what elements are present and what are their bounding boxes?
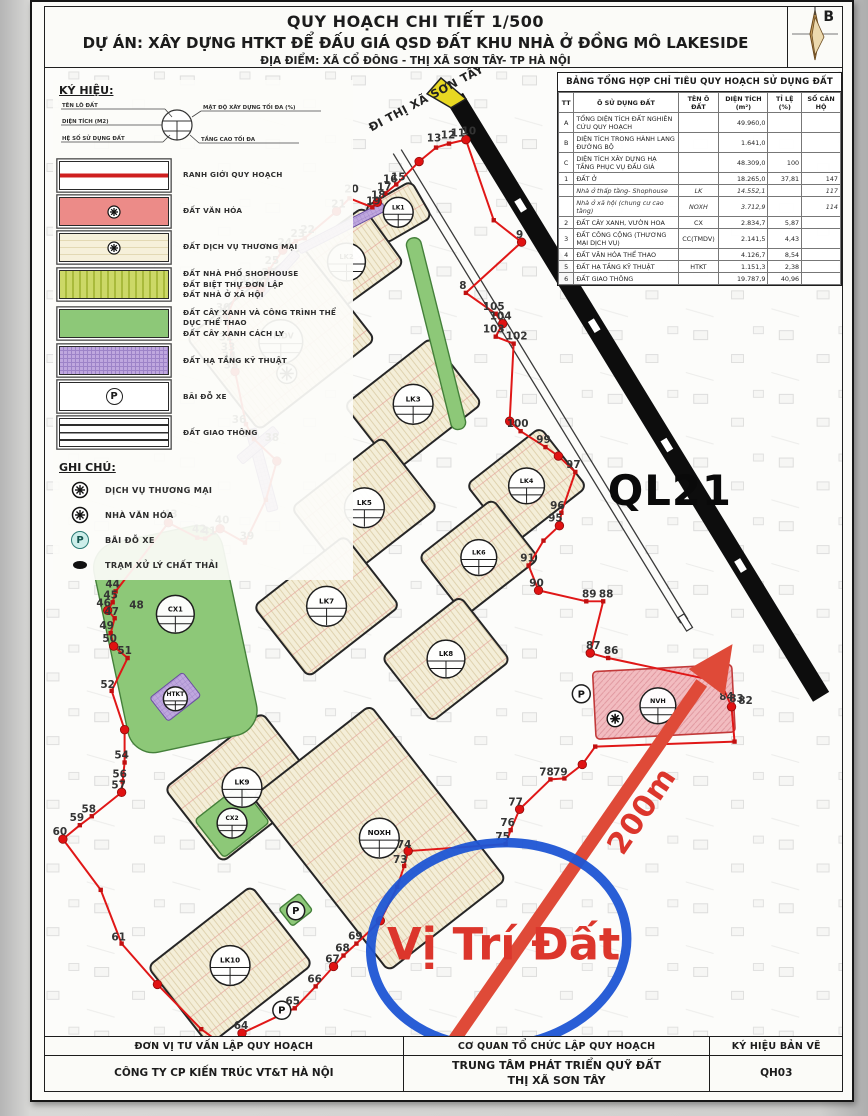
table-row: Nhà ở xã hội (chung cư cao tầng)NOXH3.71… — [559, 197, 841, 217]
boundary-point-number: 19 — [366, 195, 381, 207]
table-cell: 2 — [559, 217, 574, 229]
legend-item-boundary: RANH GIỚI QUY HOẠCH — [59, 161, 351, 190]
table-cell: ĐẤT CÂY XANH, VƯỜN HOA — [574, 217, 678, 229]
table-cell: 18.265,0 — [719, 173, 768, 185]
table-cell — [678, 249, 719, 261]
drawing-sheet: QUY HOẠCH CHI TIẾT 1/500 DỰ ÁN: XÂY DỰNG… — [30, 0, 854, 1102]
table-cell — [802, 217, 841, 229]
parcel-stamp-CX1: CX1 — [156, 595, 194, 633]
boundary-point-number: 100 — [507, 418, 529, 430]
parcel-stamp-CX2: CX2 — [217, 808, 247, 838]
boundary-point-number: 74 — [397, 839, 412, 851]
table-cell: 6 — [559, 273, 574, 285]
table-row: Nhà ở thấp tầng- ShophouseLK14.552,1117 — [559, 185, 841, 197]
boundary-point-number: 89 — [582, 588, 597, 600]
boundary-point-number: 90 — [529, 577, 544, 589]
boundary-point-number: 95 — [548, 513, 563, 525]
table-cell: 37,81 — [768, 173, 802, 185]
table-cell: CX — [678, 217, 719, 229]
boundary-point-number: 87 — [586, 640, 601, 652]
table-cell — [559, 185, 574, 197]
table-cell — [802, 153, 841, 173]
note-label: TRẠM XỬ LÝ CHẤT THẢI — [105, 560, 218, 570]
organizer-name-line1: TRUNG TÂM PHÁT TRIỂN QUỸ ĐẤT — [452, 1059, 661, 1073]
svg-text:MẬT ĐỘ XÂY DỰNG TỐI ĐA (%): MẬT ĐỘ XÂY DỰNG TỐI ĐA (%) — [203, 103, 296, 111]
boundary-point-number: 76 — [500, 817, 515, 829]
boundary-marker — [434, 145, 438, 149]
svg-text:LK6: LK6 — [472, 549, 486, 557]
table-cell: 4 — [559, 249, 574, 261]
boundary-dot — [120, 725, 129, 734]
svg-text:HTKT: HTKT — [166, 691, 185, 698]
boundary-point-number: 69 — [348, 931, 363, 943]
boundary-point-number: 68 — [335, 943, 350, 955]
parcel-stamp-LK10: LK10 — [210, 946, 250, 986]
table-row: 1ĐẤT Ở18.265,037,81147 — [559, 173, 841, 185]
table-cell — [559, 197, 574, 217]
parcel-stamp-LK3: LK3 — [393, 384, 433, 424]
parcel-stamp-LK9: LK9 — [222, 767, 262, 807]
table-cell — [768, 185, 802, 197]
boundary-point-number: 88 — [599, 588, 614, 600]
legend-swatch-green — [59, 309, 169, 338]
table-header: TỈ LỆ (%) — [768, 93, 802, 113]
table-cell: 3.712,9 — [719, 197, 768, 217]
table-cell: 49.960,0 — [719, 113, 768, 133]
legend-swatch-road — [59, 418, 169, 447]
legend-swatch-htkt — [59, 346, 169, 375]
table-cell — [768, 133, 802, 153]
boundary-point-number: 77 — [508, 796, 523, 808]
boundary-point-number: 66 — [307, 973, 322, 985]
legend-label: ĐẤT DỊCH VỤ THƯƠNG MẠI — [183, 242, 297, 253]
map-area: LK1LK2TMDVLK3LK4LK5LK6LK7LK8CX1LK9CX2NOX… — [45, 68, 842, 1036]
legend-swatch-culture — [59, 197, 169, 226]
boundary-point-number: 91 — [520, 553, 535, 565]
table-title: BẢNG TỔNG HỢP CHỈ TIÊU QUY HOẠCH SỬ DỤNG… — [558, 73, 841, 92]
table-cell: 1 — [559, 173, 574, 185]
table-cell — [802, 133, 841, 153]
boundary-point-number: 48 — [129, 599, 144, 611]
table-cell: 2.834,7 — [719, 217, 768, 229]
boundary-point-number: 99 — [536, 434, 551, 446]
svg-text:LK10: LK10 — [220, 955, 240, 964]
table-row: CDIỆN TÍCH XÂY DỰNG HẠ TẦNG PHỤC VỤ ĐẤU … — [559, 153, 841, 173]
table-cell: A — [559, 113, 574, 133]
footer-consultant: ĐƠN VỊ TƯ VẤN LẬP QUY HOẠCH CÔNG TY CP K… — [45, 1037, 404, 1091]
landuse-summary-table: BẢNG TỔNG HỢP CHỈ TIÊU QUY HOẠCH SỬ DỤNG… — [557, 72, 842, 286]
boundary-marker — [732, 739, 736, 743]
commerce-icon — [71, 481, 89, 499]
legend-item-commerce: ĐẤT DỊCH VỤ THƯƠNG MẠI — [59, 233, 351, 262]
note-label: NHÀ VĂN HÓA — [105, 510, 174, 520]
table-cell: 4.126,7 — [719, 249, 768, 261]
culture-icon — [607, 711, 623, 727]
parcel-stamp-NOXH: NOXH — [359, 818, 399, 858]
notes-heading: GHI CHÚ: — [59, 461, 351, 474]
symbol-star-icon — [107, 241, 121, 255]
boundary-marker — [492, 218, 496, 222]
parcel-stamp-P: P — [572, 685, 590, 703]
table-header: Ô SỬ DỤNG ĐẤT — [574, 93, 678, 113]
legend-label: ĐẤT GIAO THÔNG — [183, 428, 258, 439]
boundary-dot — [554, 452, 563, 461]
svg-text:LK9: LK9 — [234, 777, 249, 786]
boundary-point-number: 52 — [100, 679, 115, 691]
legend-items: RANH GIỚI QUY HOẠCHĐẤT VĂN HÓAĐẤT DỊCH V… — [59, 161, 351, 447]
boundary-marker — [593, 744, 597, 748]
table-header: TT — [559, 93, 574, 113]
parcel-stamp-HTKT: HTKT — [163, 687, 187, 711]
footer-drawing-code: KÝ HIỆU BẢN VẼ QH03 — [710, 1037, 842, 1091]
boundary-point-number: 47 — [104, 606, 119, 618]
table-cell: 1.641,0 — [719, 133, 768, 153]
table-cell: 4,43 — [768, 229, 802, 249]
parcel-stamp-P: P — [287, 902, 305, 920]
consultant-name: CÔNG TY CP KIẾN TRÚC VT&T HÀ NỘI — [45, 1056, 403, 1091]
organizer-name: TRUNG TÂM PHÁT TRIỂN QUỸ ĐẤT THỊ XÃ SƠN … — [404, 1056, 710, 1091]
parcel-stamp-LK1: LK1 — [383, 197, 413, 227]
boundary-marker — [541, 538, 545, 542]
waste-icon — [71, 556, 89, 574]
table-header: DIỆN TÍCH (m²) — [719, 93, 768, 113]
table-cell: 100 — [768, 153, 802, 173]
svg-text:LK1: LK1 — [392, 204, 405, 211]
boundary-dot — [415, 157, 424, 166]
compass-label: B — [823, 9, 834, 25]
svg-text:LK5: LK5 — [357, 498, 372, 507]
boundary-point-number: 8 — [459, 280, 466, 292]
svg-text:LK3: LK3 — [406, 394, 421, 403]
boundary-point-number: 60 — [53, 826, 68, 838]
drawing-code-value: QH03 — [710, 1056, 842, 1091]
table-row: 5ĐẤT HẠ TẦNG KỸ THUẬTHTKT1.151,32,38 — [559, 261, 841, 273]
svg-text:LK8: LK8 — [439, 650, 454, 658]
note-parking: PBÃI ĐỖ XE — [71, 531, 351, 549]
table-row: 3ĐẤT CÔNG CỘNG (THƯƠNG MẠI DỊCH VỤ)CC(TM… — [559, 229, 841, 249]
table-row: 6ĐẤT GIAO THÔNG19.787,940,96 — [559, 273, 841, 285]
table-cell: 40,96 — [768, 273, 802, 285]
boundary-point-number: 73 — [393, 854, 408, 866]
legend-item-shophouse: ĐẤT NHÀ PHỐ SHOPHOUSEĐẤT BIỆT THỰ ĐƠN LẬ… — [59, 269, 351, 301]
table-cell: Nhà ở thấp tầng- Shophouse — [574, 185, 678, 197]
drawing-title: QUY HOẠCH CHI TIẾT 1/500 — [45, 12, 786, 31]
table-cell: NOXH — [678, 197, 719, 217]
svg-text:HỆ SỐ SỬ DỤNG ĐẤT: HỆ SỐ SỬ DỤNG ĐẤT — [62, 134, 125, 142]
svg-text:LK4: LK4 — [520, 477, 534, 485]
table-cell: 19.787,9 — [719, 273, 768, 285]
table-cell: DIỆN TÍCH TRONG HÀNH LANG ĐƯỜNG BỘ — [574, 133, 678, 153]
svg-text:P: P — [578, 689, 585, 700]
legend-panel: KÝ HIỆU: TÊN LÔ ĐẤT DIỆN TÍCH (M2) HỆ SỐ… — [53, 80, 353, 580]
table-cell: Nhà ở xã hội (chung cư cao tầng) — [574, 197, 678, 217]
legend-label: ĐẤT VĂN HÓA — [183, 206, 242, 217]
table-row: ATỔNG DIỆN TÍCH ĐẤT NGHIÊN CỨU QUY HOẠCH… — [559, 113, 841, 133]
boundary-dot — [153, 980, 162, 989]
boundary-marker — [199, 1027, 203, 1031]
site-label: Vị Trí Đất — [387, 918, 620, 971]
svg-text:P: P — [278, 1006, 285, 1017]
legend-swatch-boundary — [59, 161, 169, 190]
table-header: TÊN Ô ĐẤT — [678, 93, 719, 113]
table-cell — [802, 249, 841, 261]
table-cell: 1.151,3 — [719, 261, 768, 273]
svg-text:NOXH: NOXH — [368, 828, 391, 837]
table-cell — [678, 133, 719, 153]
table-cell: HTKT — [678, 261, 719, 273]
note-label: BÃI ĐỖ XE — [105, 535, 155, 545]
parcel-stamp-LK6: LK6 — [461, 540, 497, 576]
table-cell: ĐẤT Ở — [574, 173, 678, 185]
boundary-point-number: 13 — [427, 133, 442, 145]
note-waste: TRẠM XỬ LÝ CHẤT THẢI — [71, 556, 351, 574]
boundary-point-number: 57 — [111, 779, 126, 791]
boundary-point-number: 105 — [483, 301, 505, 313]
table-cell: TỔNG DIỆN TÍCH ĐẤT NGHIÊN CỨU QUY HOẠCH — [574, 113, 678, 133]
table-cell: ĐẤT HẠ TẦNG KỸ THUẬT — [574, 261, 678, 273]
legend-item-road: ĐẤT GIAO THÔNG — [59, 418, 351, 447]
note-culture: NHÀ VĂN HÓA — [71, 506, 351, 524]
svg-text:P: P — [292, 906, 299, 917]
legend-item-htkt: ĐẤT HẠ TẦNG KỸ THUẬT — [59, 346, 351, 375]
table-cell — [802, 113, 841, 133]
table-cell: B — [559, 133, 574, 153]
note-commerce: DỊCH VỤ THƯƠNG MẠI — [71, 481, 351, 499]
table-cell — [768, 113, 802, 133]
drawing-frame: QUY HOẠCH CHI TIẾT 1/500 DỰ ÁN: XÂY DỰNG… — [44, 6, 843, 1092]
organizer-header: CƠ QUAN TỔ CHỨC LẬP QUY HOẠCH — [404, 1037, 710, 1056]
legend-item-green: ĐẤT CÂY XANH VÀ CÔNG TRÌNH THỂ DỤC THỂ T… — [59, 308, 351, 340]
boundary-marker — [99, 888, 103, 892]
table-cell: 5 — [559, 261, 574, 273]
svg-text:DIỆN TÍCH (M2): DIỆN TÍCH (M2) — [62, 117, 109, 125]
table-row: 2ĐẤT CÂY XANH, VƯỜN HOACX2.834,75,87 — [559, 217, 841, 229]
table-header: SỐ CĂN HỘ — [802, 93, 841, 113]
boundary-point-number: 50 — [102, 633, 117, 645]
legend-item-parking: PBÃI ĐỖ XE — [59, 382, 351, 411]
table-cell — [802, 273, 841, 285]
table-cell — [802, 229, 841, 249]
legend-swatch-parking: P — [59, 382, 169, 411]
organizer-name-line2: THỊ XÃ SƠN TÂY — [508, 1074, 606, 1088]
table-cell: ĐẤT VĂN HÓA THỂ THAO — [574, 249, 678, 261]
svg-text:CX1: CX1 — [168, 605, 183, 613]
note-label: DỊCH VỤ THƯƠNG MẠI — [105, 485, 212, 495]
boundary-point-number: 51 — [117, 645, 132, 657]
boundary-marker — [447, 141, 451, 145]
svg-text:TẦNG CAO TỐI ĐA: TẦNG CAO TỐI ĐA — [201, 134, 256, 143]
legend-notes: DỊCH VỤ THƯƠNG MẠINHÀ VĂN HÓAPBÃI ĐỖ XET… — [59, 481, 351, 574]
boundary-point-number: 49 — [99, 620, 114, 632]
table-grid: TTÔ SỬ DỤNG ĐẤTTÊN Ô ĐẤTDIỆN TÍCH (m²)TỈ… — [558, 92, 841, 285]
parking-icon: P — [71, 531, 89, 549]
boundary-point-number: 79 — [553, 766, 568, 778]
parcel-stamp-LK4: LK4 — [509, 468, 545, 504]
legend-heading: KÝ HIỆU: — [59, 84, 351, 97]
boundary-point-number: 67 — [325, 953, 340, 965]
svg-text:NVH: NVH — [650, 697, 666, 705]
table-cell — [768, 197, 802, 217]
title-block: QUY HOẠCH CHI TIẾT 1/500 DỰ ÁN: XÂY DỰNG… — [45, 7, 842, 68]
boundary-point-number: 61 — [111, 932, 126, 944]
table-cell: 5,87 — [768, 217, 802, 229]
table-cell: 117 — [802, 185, 841, 197]
table-cell: 2.141,5 — [719, 229, 768, 249]
table-cell: 147 — [802, 173, 841, 185]
legend-item-culture: ĐẤT VĂN HÓA — [59, 197, 351, 226]
parcel-stamp-diagram: TÊN LÔ ĐẤT DIỆN TÍCH (M2) HỆ SỐ SỬ DỤNG … — [59, 99, 337, 151]
boundary-point-number: 86 — [604, 645, 619, 657]
table-cell — [678, 153, 719, 173]
project-title: DỰ ÁN: XÂY DỰNG HTKT ĐỂ ĐẤU GIÁ QSD ĐẤT … — [45, 34, 786, 52]
consultant-header: ĐƠN VỊ TƯ VẤN LẬP QUY HOẠCH — [45, 1037, 403, 1056]
table-cell — [678, 173, 719, 185]
boundary-point-number: 9 — [516, 229, 523, 241]
ql21-label: QL21 — [608, 466, 732, 515]
footer-titleblock: ĐƠN VỊ TƯ VẤN LẬP QUY HOẠCH CÔNG TY CP K… — [45, 1036, 842, 1091]
legend-label: RANH GIỚI QUY HOẠCH — [183, 170, 283, 181]
parcel-stamp-LK7: LK7 — [307, 586, 347, 626]
table-cell: DIỆN TÍCH XÂY DỰNG HẠ TẦNG PHỤC VỤ ĐẤU G… — [574, 153, 678, 173]
legend-swatch-shophouse — [59, 270, 169, 299]
table-cell: LK — [678, 185, 719, 197]
table-cell: 48.309,0 — [719, 153, 768, 173]
drawing-code-header: KÝ HIỆU BẢN VẼ — [710, 1037, 842, 1056]
legend-label: BÃI ĐỖ XE — [183, 392, 227, 403]
boundary-point-number: 64 — [234, 1020, 249, 1032]
symbol-star-icon — [107, 205, 121, 219]
boundary-point-number: 97 — [566, 459, 581, 471]
culture-icon — [71, 506, 89, 524]
parcel-stamp-LK8: LK8 — [427, 640, 465, 678]
boundary-point-number: 59 — [70, 812, 85, 824]
table-cell: 114 — [802, 197, 841, 217]
boundary-point-number: 78 — [539, 766, 554, 778]
title-text-group: QUY HOẠCH CHI TIẾT 1/500 DỰ ÁN: XÂY DỰNG… — [45, 7, 786, 67]
table-row: BDIỆN TÍCH TRONG HÀNH LANG ĐƯỜNG BỘ1.641… — [559, 133, 841, 153]
table-row: 4ĐẤT VĂN HÓA THỂ THAO4.126,78,54 — [559, 249, 841, 261]
boundary-dot — [578, 760, 587, 769]
boundary-point-number: 103 — [483, 324, 505, 336]
boundary-point-number: 102 — [506, 331, 528, 343]
legend-swatch-commerce — [59, 233, 169, 262]
table-cell — [678, 113, 719, 133]
table-cell: CC(TMDV) — [678, 229, 719, 249]
north-compass: B — [787, 7, 842, 67]
table-cell: 14.552,1 — [719, 185, 768, 197]
legend-label: ĐẤT CÂY XANH VÀ CÔNG TRÌNH THỂ DỤC THỂ T… — [183, 308, 351, 340]
boundary-point-number: 12 — [441, 130, 456, 142]
table-cell: 3 — [559, 229, 574, 249]
svg-text:LK7: LK7 — [319, 596, 334, 605]
table-cell: ĐẤT GIAO THÔNG — [574, 273, 678, 285]
project-location: ĐỊA ĐIỂM: XÃ CỔ ĐÔNG - THỊ XÃ SƠN TÂY- T… — [45, 55, 786, 67]
svg-text:TÊN LÔ ĐẤT: TÊN LÔ ĐẤT — [62, 101, 98, 109]
parking-icon: P — [106, 388, 123, 405]
table-cell: 8,54 — [768, 249, 802, 261]
table-cell: C — [559, 153, 574, 173]
footer-organizer: CƠ QUAN TỔ CHỨC LẬP QUY HOẠCH TRUNG TÂM … — [404, 1037, 711, 1091]
boundary-point-number: 65 — [285, 995, 300, 1007]
legend-label: ĐẤT HẠ TẦNG KỸ THUẬT — [183, 356, 287, 367]
svg-text:CX2: CX2 — [226, 815, 239, 822]
boundary-point-number: 96 — [550, 500, 565, 512]
boundary-point-number: 54 — [114, 750, 129, 762]
legend-label: ĐẤT NHÀ PHỐ SHOPHOUSEĐẤT BIỆT THỰ ĐƠN LẬ… — [183, 269, 298, 301]
table-cell — [802, 261, 841, 273]
table-cell — [678, 273, 719, 285]
table-cell: ĐẤT CÔNG CỘNG (THƯƠNG MẠI DỊCH VỤ) — [574, 229, 678, 249]
table-cell: 2,38 — [768, 261, 802, 273]
planning-map-page: { "colors":{ "boundary_red":"#e01717","a… — [0, 0, 868, 1116]
